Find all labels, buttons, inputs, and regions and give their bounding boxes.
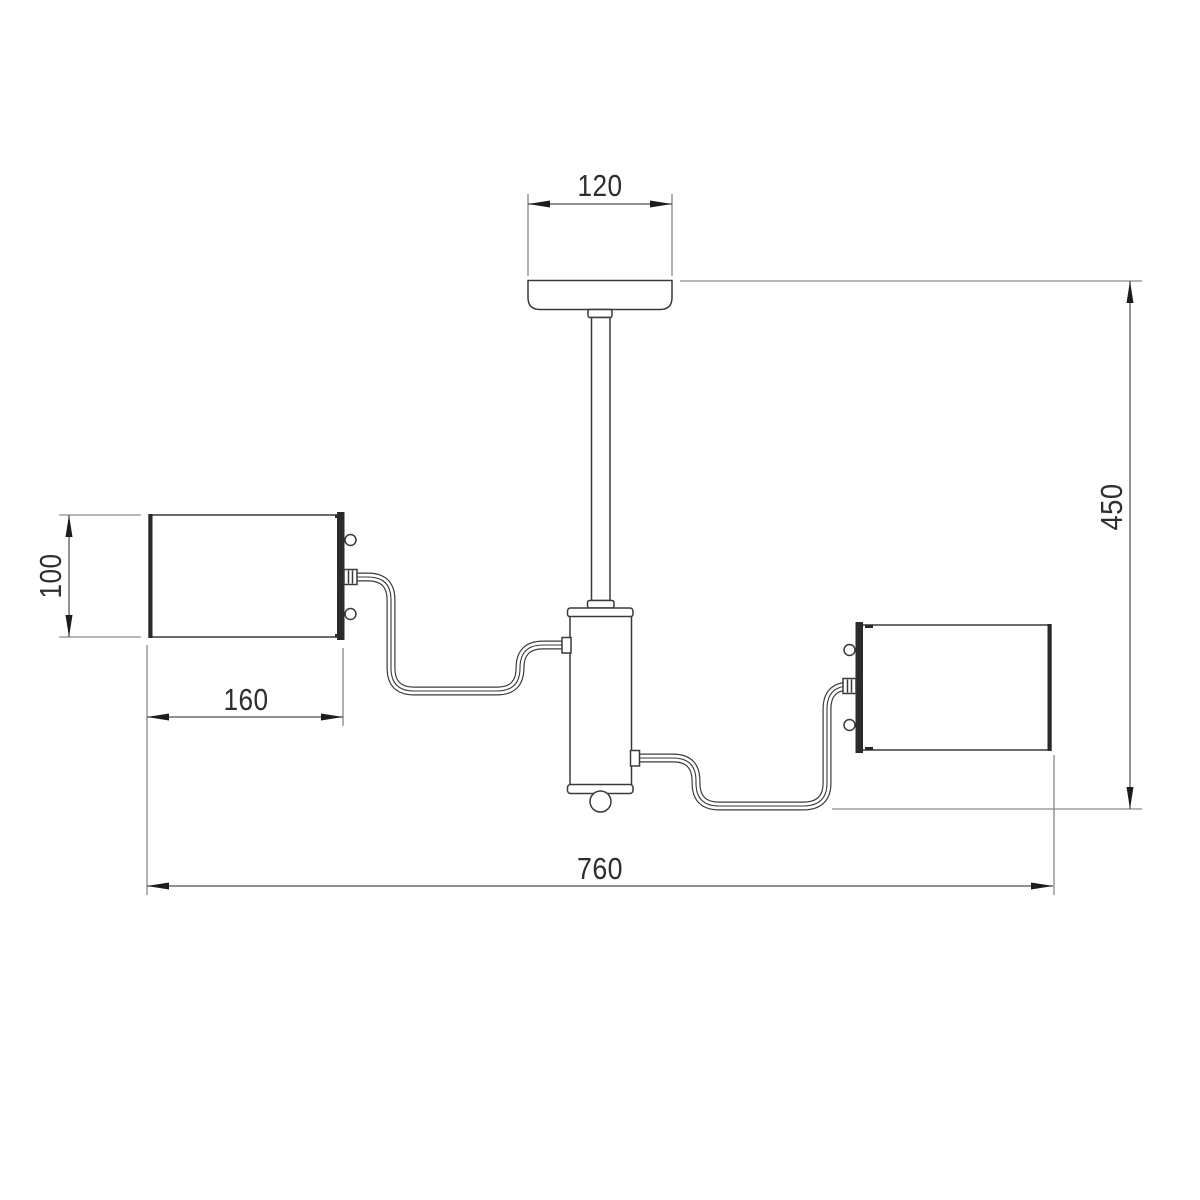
dim-overall-width: 760 [147,851,1053,890]
dim-label-overall-height: 450 [1094,484,1129,531]
body-right-arm-socket [631,751,640,767]
arrowhead-bottom [66,615,73,637]
right-shade-outline [857,625,1051,750]
arrowhead-right [321,714,343,721]
dim-label-shade-height: 100 [33,554,68,599]
left-shade-clip-top [345,535,356,546]
ceiling-canopy [528,281,672,318]
arrowhead-top [1127,281,1134,303]
hanging-stem [588,318,615,609]
dim-shade-height: 100 [33,515,73,637]
lamp-dimension-drawing: 120 450 100 160 760 [0,0,1200,1200]
body-left-arm-socket [562,638,571,654]
dim-canopy-width: 120 [528,168,672,208]
central-body [562,608,640,812]
right-shade [843,622,1051,753]
arrowhead-right [1031,883,1053,890]
right-shade-clip-bottom [844,720,855,731]
right-shade-clip-top [844,645,855,656]
stem-rod [592,318,611,601]
dim-shade-width: 160 [147,682,343,721]
arrowhead-top [66,515,73,537]
left-shade-clip-bottom [345,609,356,620]
technical-drawing-canvas: 120 450 100 160 760 [0,0,1200,1200]
arrowhead-left [528,201,550,208]
dim-label-shade-width: 160 [224,682,269,717]
canopy-collar [588,310,612,318]
stem-collar [588,601,615,609]
body-cap-top [568,608,634,617]
left-arm-tube [354,577,566,691]
left-shade [149,512,357,640]
right-shade-arm-connector [843,679,856,694]
arrowhead-left [147,714,169,721]
arrowhead-left [147,883,169,890]
body-cylinder [570,617,632,786]
right-arm-tube [637,686,858,806]
finial-ball [590,791,611,812]
left-shade-outline [149,515,343,637]
arrowhead-right [650,201,672,208]
dim-overall-height: 450 [1094,281,1134,809]
dim-label-overall-width: 760 [577,851,623,886]
dim-label-canopy-width: 120 [578,168,623,203]
arrowhead-bottom [1127,787,1134,809]
left-shade-arm-connector [344,570,357,585]
canopy-body [528,281,672,310]
